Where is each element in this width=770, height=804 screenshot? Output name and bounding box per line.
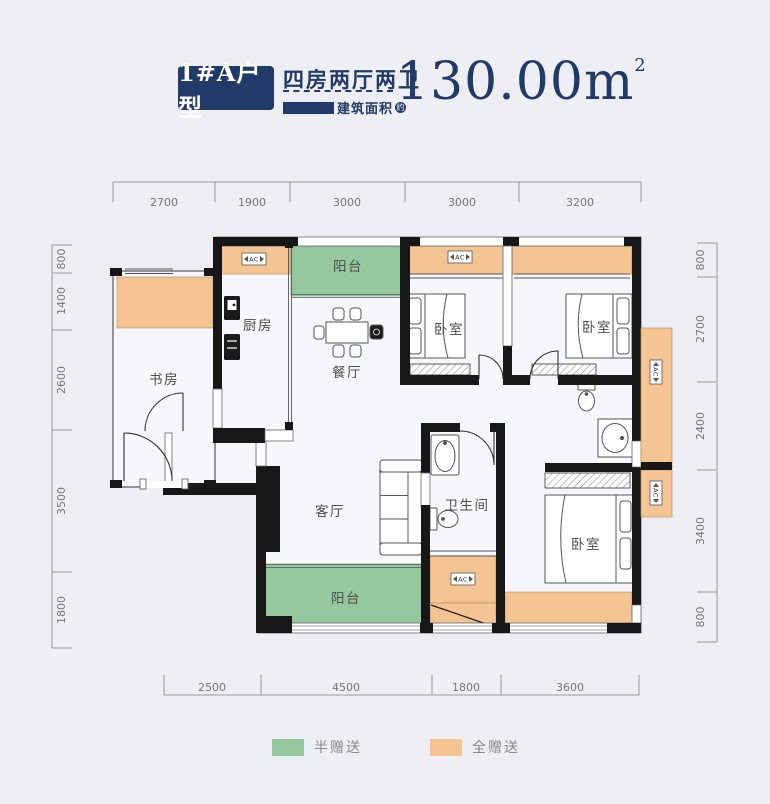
sofa: [380, 460, 422, 555]
dim-label: 1800: [55, 596, 68, 624]
dim-label: 1400: [55, 287, 68, 315]
dim-top-labels: 2700 1900 3000 3000 3200: [150, 196, 594, 209]
dim-label: 3600: [556, 681, 584, 694]
room-label-master-bedroom: 卧室: [571, 536, 601, 553]
room-label-balcony-top: 阳台: [333, 259, 363, 275]
legend-swatch-orange: [430, 739, 462, 756]
legend-full-gift: 全赠送: [430, 737, 520, 757]
dim-label: 1900: [238, 196, 266, 209]
floorplan-page: 1#A户型 四房两厅两卫 建筑面积 约 130.00m2: [0, 0, 770, 804]
dim-label: 3500: [55, 487, 68, 515]
room-label-study: 书房: [149, 372, 179, 388]
room-label-bathroom: 卫生间: [445, 498, 490, 514]
dim-label: 3200: [566, 196, 594, 209]
ac-badge-bath-platform: AC: [451, 573, 475, 585]
dim-label: 2600: [55, 366, 68, 394]
room-label-living: 客厅: [315, 503, 345, 520]
dim-label: 1800: [452, 681, 480, 694]
dim-label: 4500: [332, 681, 360, 694]
room-label-dining: 餐厅: [332, 365, 362, 381]
ac-label: AC: [652, 488, 660, 498]
dim-label: 3000: [333, 196, 361, 209]
ac-label: AC: [652, 367, 660, 377]
legend-label-half: 半赠送: [314, 737, 362, 757]
ac-badge-right-lower: AC: [650, 481, 662, 505]
room-label-bedroom2: 卧室: [582, 319, 612, 336]
legend-half-gift: 半赠送: [272, 737, 362, 757]
dim-label: 2400: [694, 412, 707, 440]
dim-top: [113, 182, 641, 202]
dim-right: [697, 243, 717, 642]
dim-label: 800: [694, 250, 707, 271]
ac-badge-right-upper: AC: [650, 360, 662, 384]
room-label-bedroom1: 卧室: [434, 321, 464, 338]
ac-badge-kitchen: AC: [242, 253, 266, 265]
dim-label: 3000: [448, 196, 476, 209]
dim-right-labels: 800 2700 2400 3400 800: [694, 250, 707, 628]
legend-swatch-green: [272, 739, 304, 756]
floor-plan: AC AC AC AC AC 阳台 厨房 书房 餐厅 卧室: [0, 0, 770, 804]
ac-label: AC: [455, 254, 465, 262]
dim-label: 2500: [198, 681, 226, 694]
dim-label: 800: [55, 249, 68, 270]
ac-label: AC: [458, 576, 468, 584]
dim-bottom-labels: 2500 4500 1800 3600: [198, 681, 584, 694]
legend: 半赠送 全赠送: [0, 737, 770, 761]
room-label-kitchen: 厨房: [243, 318, 273, 334]
dim-label: 3400: [694, 517, 707, 545]
dim-left-labels: 800 1400 2600 3500 1800: [55, 249, 68, 625]
dim-label: 2700: [694, 315, 707, 343]
ac-label: AC: [249, 256, 259, 264]
room-label-balcony-bottom: 阳台: [331, 591, 361, 607]
dim-label: 800: [694, 607, 707, 628]
ac-badge-bedroom1: AC: [448, 251, 472, 263]
legend-label-full: 全赠送: [472, 737, 520, 757]
dim-label: 2700: [150, 196, 178, 209]
